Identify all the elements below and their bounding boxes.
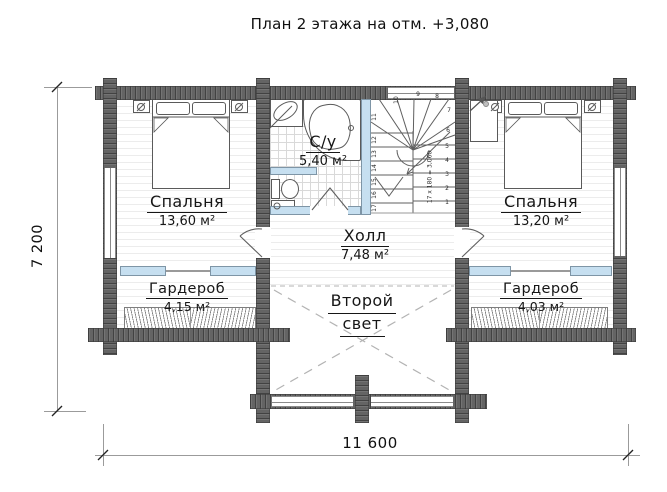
stair-step-2: 2: [445, 186, 449, 192]
stair-step-10: 10: [394, 96, 400, 104]
sliding-door-left-1: [120, 266, 166, 276]
stair-step-14: 14: [372, 164, 378, 172]
room-area: 5,40 м²: [283, 155, 363, 170]
sliding-track-right: [511, 270, 570, 272]
window-bottom-2: [371, 396, 453, 407]
wall-top: [95, 86, 636, 100]
stair-formula: 17 x 180 = 3,060: [427, 151, 434, 203]
dim-extension-bottom-left: [44, 411, 86, 412]
nightstand-icon: [133, 100, 150, 113]
sliding-track-left: [166, 270, 210, 272]
stair-step-4: 4: [445, 158, 449, 164]
window-left: [104, 168, 116, 258]
door-opening-bathroom: [310, 206, 348, 215]
stair-step-3: 3: [445, 172, 449, 178]
room-area: 4,03 м²: [469, 300, 613, 314]
room-area: 13,20 м²: [468, 215, 614, 230]
dim-vertical-label: 7 200: [30, 216, 46, 276]
stair-step-7: 7: [447, 108, 451, 114]
sliding-door-left-2: [210, 266, 256, 276]
room-name: Гардероб: [500, 281, 582, 299]
floor-plan: План 2 этажа на отм. +3,080 7 200 11 600: [0, 0, 667, 492]
pillow-icon: [508, 102, 542, 115]
stair-step-5: 5: [445, 144, 449, 150]
cabinet-icon: [470, 100, 498, 142]
pillow-icon: [192, 102, 226, 115]
dim-extension-bottom-2: [628, 424, 629, 466]
stair-step-17: 17: [372, 204, 378, 212]
window-right: [614, 168, 626, 256]
pillow-icon: [544, 102, 578, 115]
room-label-wardrobe-left: Гардероб 4,15 м²: [117, 279, 257, 314]
page-title: План 2 этажа на отм. +3,080: [180, 15, 560, 33]
dim-horizontal-label: 11 600: [300, 434, 440, 452]
room-name-line1: Второй: [328, 291, 397, 314]
sliding-door-right-2: [570, 266, 612, 276]
stair-step-15: 15: [372, 178, 378, 186]
room-name: Спальня: [501, 193, 581, 213]
wall-wardrobe-bottom-left: [88, 328, 290, 342]
room-label-bathroom: С/у 5,40 м²: [283, 133, 363, 169]
door-opening-bedroom-left: [255, 227, 271, 258]
dim-line-vertical: [57, 87, 58, 412]
room-area: 13,60 м²: [117, 215, 257, 230]
room-area: 4,15 м²: [117, 300, 257, 314]
stair-step-16: 16: [372, 191, 378, 199]
stair-step-8: 8: [435, 94, 439, 100]
room-name-line2: свет: [340, 314, 385, 337]
dim-line-horizontal: [95, 455, 640, 456]
nightstand-icon: [231, 100, 248, 113]
room-label-hall: Холл 7,48 м²: [275, 227, 455, 263]
wall-wardrobe-bottom-right: [446, 328, 636, 342]
dim-extension-bottom-1: [103, 424, 104, 466]
post-bottom-center: [355, 375, 369, 423]
room-name: Гардероб: [146, 281, 228, 299]
room-label-bedroom-left: Спальня 13,60 м²: [117, 193, 257, 229]
room-name: Спальня: [147, 193, 227, 213]
room-name: Холл: [341, 227, 390, 247]
stair-step-1: 1: [445, 200, 449, 206]
stair-step-6: 6: [446, 128, 450, 134]
stair-step-12: 12: [372, 136, 378, 144]
room-label-void: Второй свет: [272, 291, 452, 337]
room-area: 7,48 м²: [275, 249, 455, 264]
door-opening-bedroom-right: [454, 227, 470, 258]
nightstand-icon: [584, 100, 601, 113]
stair-step-11: 11: [372, 113, 378, 121]
toilet-tank-icon: [271, 179, 280, 199]
sliding-door-right-1: [469, 266, 511, 276]
room-label-wardrobe-right: Гардероб 4,03 м²: [469, 279, 613, 314]
room-label-bedroom-right: Спальня 13,20 м²: [468, 193, 614, 229]
dim-extension-top-left: [44, 87, 92, 88]
toilet-icon: [281, 179, 299, 199]
stair-step-9: 9: [416, 92, 420, 98]
floor-stairs: [371, 99, 455, 215]
stair-step-13: 13: [372, 150, 378, 158]
pillow-icon: [156, 102, 190, 115]
room-name: С/у: [306, 133, 339, 153]
window-bottom-1: [272, 396, 353, 407]
